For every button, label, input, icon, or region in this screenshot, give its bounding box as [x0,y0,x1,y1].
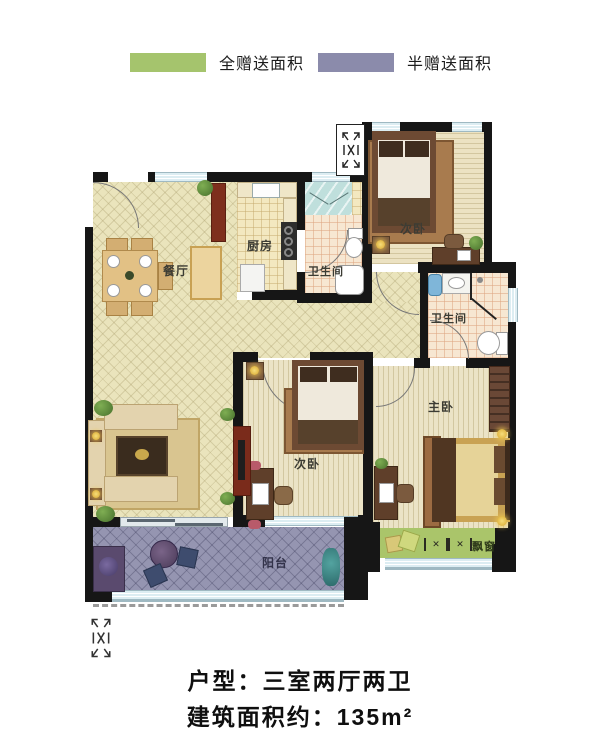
sofa-top [104,404,178,430]
bedroom-top-desk [432,247,480,265]
legend-label-half-gift: 半赠送面积 [407,50,492,74]
mop-basin [428,274,442,296]
room-label-bathroom2: 卫生间 [431,310,467,326]
pillow [330,367,357,382]
flowers [248,520,261,529]
wall [207,172,312,182]
elevator-glyph [340,128,362,172]
wall [368,522,380,572]
wall [508,265,516,288]
window-bedroom-top-2 [452,122,482,132]
balcony-dashed-line [93,604,344,607]
desk-chair [396,484,414,503]
master-mattress [456,444,498,516]
wardrobe [489,366,510,432]
burner [284,237,293,246]
plant [375,458,388,469]
legend-item-half-gift: 半赠送面积 [318,50,492,74]
sink-counter [442,273,472,294]
desk-papers [457,250,471,261]
planter-plant [99,557,118,576]
wall [414,358,430,368]
balcony-planter [93,546,125,592]
balcony-railing-window [112,590,344,602]
balcony-plant [322,548,340,586]
desk-papers [379,483,394,503]
master-desk [374,466,398,520]
window-dining [155,172,207,182]
master-headboard [505,440,510,520]
balcony-table [150,540,178,568]
desk-chair [444,234,464,249]
lamp [497,516,507,526]
lamp [92,490,100,498]
plate [107,255,120,268]
elevator-icon [336,124,365,176]
pillow [405,141,429,157]
window-bathroom2 [508,288,518,322]
wall [344,517,368,600]
wall [148,172,155,182]
lamp [92,432,100,440]
plant [220,408,235,421]
balcony-floor [93,527,344,592]
entry-rug [190,246,222,300]
room-label-balcony: 阳台 [262,554,288,571]
shower-partition [470,273,472,300]
burner [284,248,293,257]
wall [420,265,428,358]
stove [281,222,297,260]
bay-window-glass [385,558,492,570]
wall [363,352,373,522]
duct-shaft [352,182,362,215]
room-label-bedroom-mid: 次卧 [294,455,320,472]
sink-bowl [448,277,465,289]
footer-layout-text: 户型：三室两厅两卫 [0,662,600,696]
legend-swatch-half-gift [318,53,394,72]
lamp [250,366,259,375]
floorplan-page: 全赠送面积 半赠送面积 [0,0,600,748]
plant [197,180,213,196]
room-label-bathroom1: 卫生间 [308,263,344,279]
legend-swatch-full-gift [130,53,206,72]
shower-area-bath1 [305,180,352,215]
plant [469,236,483,250]
legend-label-full-gift: 全赠送面积 [219,50,304,74]
desk-chair [274,486,293,505]
tall-cabinet [211,183,226,242]
desk-papers [252,483,269,505]
legend-item-full-gift: 全赠送面积 [130,50,304,74]
lamp [497,429,507,439]
plate [139,284,152,297]
fridge [240,264,265,292]
table-centerpiece [125,271,134,280]
burner [284,226,293,235]
sliding-door-panel [175,523,223,526]
blanket [298,420,358,444]
balcony-sliding-door [120,517,228,527]
pillow [379,141,403,157]
fold-window-symbol: ✕ [448,538,472,551]
sliding-door-panel [127,519,175,522]
table-decor [135,449,149,460]
shower-head [477,277,483,283]
coffee-table [116,436,168,476]
wall [93,172,108,182]
sofa-bottom [104,476,178,502]
kitchen-sink [252,183,280,198]
wall [484,122,492,272]
toilet-bowl [345,237,363,258]
room-label-bedroom-top: 次卧 [400,220,426,237]
master-bed-foot [432,438,456,522]
elevator-glyph [89,614,113,662]
balcony-chair [176,546,199,569]
room-label-bay-window: 飘窗 [472,538,496,554]
room-label-master: 主卧 [428,398,454,415]
plate [139,255,152,268]
lamp [376,240,385,249]
plate [107,284,120,297]
plant [94,400,113,416]
plant [96,506,115,522]
tv [238,440,245,480]
fold-window-symbol: ✕ [424,538,448,551]
tv-cabinet [233,426,251,496]
room-label-kitchen: 厨房 [247,237,273,254]
pillow [300,367,327,382]
elevator-icon-bottom [87,612,114,664]
toilet2-bowl [477,331,500,355]
dining-table [102,250,158,302]
footer-area-text: 建筑面积约：135m² [0,698,600,732]
room-label-dining: 餐厅 [163,262,189,279]
wall [85,227,93,600]
wall [297,182,305,230]
wall [495,528,516,544]
